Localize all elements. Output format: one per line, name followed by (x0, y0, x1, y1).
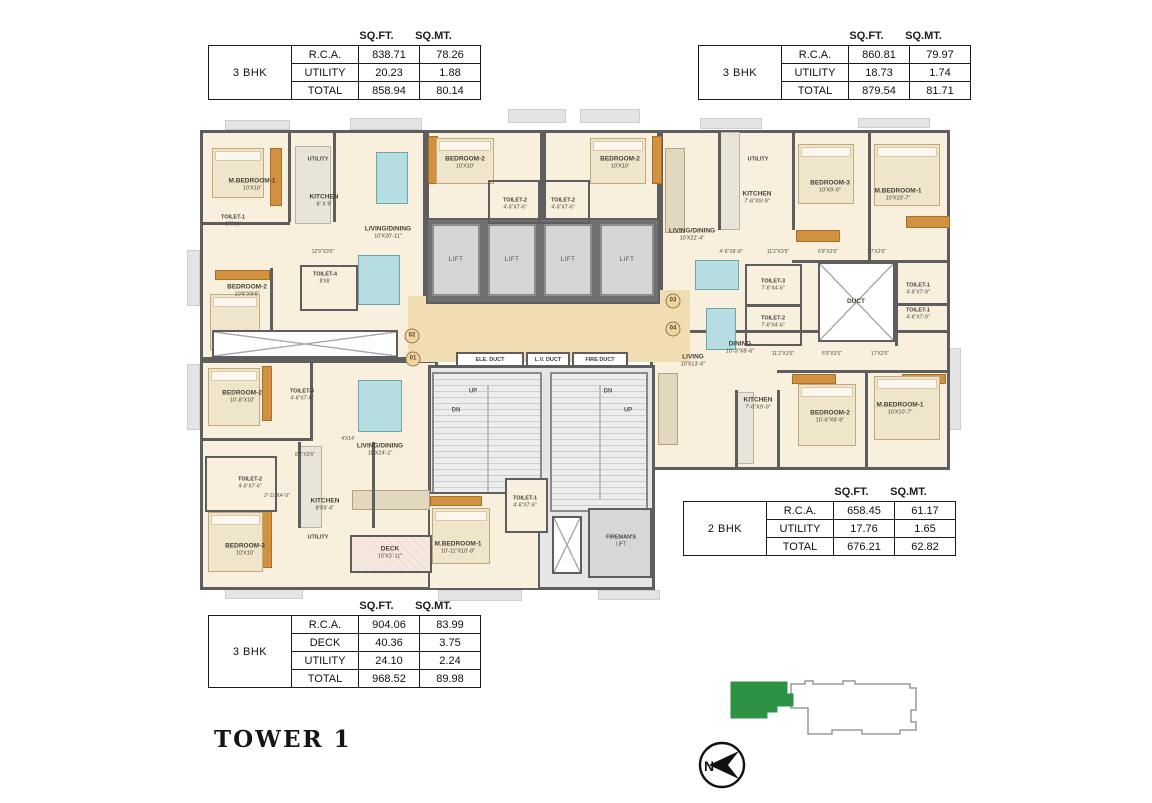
balcony-ledge (225, 120, 290, 130)
partition-wall (372, 442, 375, 528)
cell-sqmt: 62.82 (895, 538, 956, 556)
partition-wall (865, 370, 868, 470)
wardrobe (652, 136, 662, 184)
open-duct-left (212, 330, 398, 358)
row-label: UTILITY (767, 520, 834, 538)
cell-sqft: 20.23 (359, 64, 420, 82)
lift-label: LIFT (620, 257, 635, 263)
cell-sqft: 858.94 (359, 82, 420, 100)
cell-sqmt: 1.74 (910, 64, 971, 82)
sofa (352, 490, 430, 510)
cell-sqft: 24.10 (359, 652, 420, 670)
duct-label: ELE. DUCT (475, 357, 504, 363)
col-header-sqmt: SQ.MT. (895, 30, 952, 42)
tower-title: TOWER 1 (214, 726, 352, 753)
cell-sqft: 968.52 (359, 670, 420, 688)
cell-sqft: 658.45 (834, 502, 895, 520)
bed (208, 368, 260, 426)
bed (212, 148, 264, 198)
wardrobe (262, 510, 272, 568)
balcony-ledge (187, 250, 200, 306)
row-label: UTILITY (292, 64, 359, 82)
table-column-headers: SQ.FT. SQ.MT. (348, 600, 481, 612)
dining-table (358, 255, 400, 305)
cell-sqft: 40.36 (359, 634, 420, 652)
table-column-headers: SQ.FT. SQ.MT. (348, 30, 481, 42)
sofa (665, 148, 685, 233)
cell-sqmt: 89.98 (420, 670, 481, 688)
lv-duct: L.V. DUCT (526, 352, 570, 367)
balcony-ledge (508, 109, 566, 123)
partition-wall (200, 222, 290, 225)
balcony-ledge (858, 118, 930, 128)
firemans-lift (588, 508, 652, 578)
cell-sqmt: 1.65 (895, 520, 956, 538)
sofa (658, 373, 678, 445)
area-table-2bhk: SQ.FT. SQ.MT. 2 BHK R.C.A. 658.45 61.17 … (683, 486, 956, 556)
wardrobe (262, 366, 272, 421)
partition-wall (538, 180, 541, 224)
dining-table (706, 308, 736, 350)
kitchen-counter (295, 146, 331, 224)
row-label: UTILITY (292, 652, 359, 670)
row-label: R.C.A. (767, 502, 834, 520)
kitchen-counter (300, 446, 322, 528)
row-label: UTILITY (782, 64, 849, 82)
dining-table (695, 260, 739, 290)
toilet-partition (205, 456, 277, 512)
col-header-sqft: SQ.FT. (348, 600, 405, 612)
row-label: TOTAL (292, 670, 359, 688)
balcony-ledge (580, 109, 640, 123)
row-label: R.C.A. (782, 46, 849, 64)
cell-sqmt: 1.88 (420, 64, 481, 82)
kitchen-counter (718, 132, 740, 230)
lift-4: LIFT (600, 224, 654, 296)
area-table-3bhk-bottom: SQ.FT. SQ.MT. 3 BHK R.C.A. 904.06 83.99 … (208, 600, 481, 688)
duct-top-right (818, 262, 895, 342)
unit-type: 3 BHK (209, 616, 292, 688)
bed (874, 144, 940, 206)
lift-1: LIFT (432, 224, 480, 296)
partition-wall (718, 130, 721, 230)
dining-table (376, 152, 408, 204)
row-label: R.C.A. (292, 46, 359, 64)
col-header-sqmt: SQ.MT. (880, 486, 937, 498)
partition-wall (333, 130, 336, 222)
cell-sqft: 860.81 (849, 46, 910, 64)
fire-duct: FIRE DUCT (572, 352, 628, 367)
cell-sqft: 904.06 (359, 616, 420, 634)
area-table-3bhk-topleft: SQ.FT. SQ.MT. 3 BHK R.C.A. 838.71 78.26 … (208, 30, 481, 100)
bed (798, 384, 856, 446)
toilet-partition (300, 265, 358, 311)
duct-label: FIRE DUCT (585, 357, 614, 363)
bed (432, 508, 490, 564)
row-label: TOTAL (292, 82, 359, 100)
compass: N (697, 740, 747, 790)
keyplan-tower-highlight (731, 682, 793, 718)
balcony-ledge (350, 118, 422, 130)
col-header-sqft: SQ.FT. (838, 30, 895, 42)
wardrobe (792, 374, 836, 384)
deck (350, 535, 432, 573)
col-header-sqmt: SQ.MT. (405, 600, 462, 612)
cell-sqft: 879.54 (849, 82, 910, 100)
wardrobe (270, 148, 282, 206)
partition-wall (735, 390, 738, 470)
table-column-headers: SQ.FT. SQ.MT. (823, 486, 956, 498)
row-label: R.C.A. (292, 616, 359, 634)
duct-shaft-center (552, 516, 582, 574)
lift-2: LIFT (488, 224, 536, 296)
cell-sqft: 17.76 (834, 520, 895, 538)
duct-label: L.V. DUCT (535, 357, 561, 363)
kitchen-counter (736, 392, 754, 464)
area-table-3bhk-topright: SQ.FT. SQ.MT. 3 BHK R.C.A. 860.81 79.97 … (698, 30, 971, 100)
cell-sqmt: 83.99 (420, 616, 481, 634)
bed (436, 138, 494, 184)
lift-label: LIFT (505, 257, 520, 263)
bed (798, 144, 854, 204)
col-header-sqmt: SQ.MT. (405, 30, 462, 42)
lift-label: LIFT (561, 257, 576, 263)
cell-sqmt: 78.26 (420, 46, 481, 64)
row-label: TOTAL (782, 82, 849, 100)
bed (208, 512, 263, 572)
wardrobe (215, 270, 270, 280)
cell-sqmt: 2.24 (420, 652, 481, 670)
partition-wall (270, 268, 273, 330)
unit-type: 2 BHK (684, 502, 767, 556)
balcony-ledge (700, 118, 762, 129)
col-header-sqft: SQ.FT. (823, 486, 880, 498)
keyplan-footprint-outline (791, 681, 916, 734)
partition-wall (777, 390, 780, 470)
partition-wall (310, 360, 313, 441)
cell-sqmt: 61.17 (895, 502, 956, 520)
dining-table (358, 380, 402, 432)
partition-wall (288, 130, 291, 222)
partition-wall (200, 438, 312, 441)
lift-3: LIFT (544, 224, 592, 296)
keyplan (723, 676, 933, 748)
partition-wall (298, 442, 301, 528)
balcony-ledge (598, 590, 660, 600)
staircase-right (550, 372, 648, 512)
floorplan-sheet: { "title": "TOWER 1", "compass": {"label… (0, 0, 1152, 803)
partition-wall (792, 260, 950, 263)
balcony-ledge (187, 364, 200, 430)
partition-wall (792, 130, 795, 230)
lift-label: LIFT (449, 257, 464, 263)
partition-wall (868, 130, 871, 260)
cell-sqmt: 79.97 (910, 46, 971, 64)
row-label: DECK (292, 634, 359, 652)
cell-sqft: 838.71 (359, 46, 420, 64)
partition-wall (745, 304, 802, 307)
bed (874, 376, 940, 440)
table-row: 3 BHK R.C.A. 904.06 83.99 (209, 616, 481, 634)
bed (590, 138, 646, 184)
table-row: 3 BHK R.C.A. 838.71 78.26 (209, 46, 481, 64)
cell-sqft: 18.73 (849, 64, 910, 82)
cell-sqmt: 81.71 (910, 82, 971, 100)
wardrobe (796, 230, 840, 242)
col-header-sqft: SQ.FT. (348, 30, 405, 42)
unit-type: 3 BHK (699, 46, 782, 100)
cell-sqmt: 80.14 (420, 82, 481, 100)
table-column-headers: SQ.FT. SQ.MT. (838, 30, 971, 42)
wardrobe (906, 216, 950, 228)
wardrobe (430, 496, 482, 506)
table-row: 3 BHK R.C.A. 860.81 79.97 (699, 46, 971, 64)
partition-wall (895, 303, 950, 306)
entry-corridor-right (660, 290, 690, 362)
table-row: 2 BHK R.C.A. 658.45 61.17 (684, 502, 956, 520)
toilet-bottom-center (505, 478, 548, 533)
unit-type: 3 BHK (209, 46, 292, 100)
cell-sqft: 676.21 (834, 538, 895, 556)
electrical-duct: ELE. DUCT (456, 352, 524, 367)
partition-wall (777, 370, 950, 373)
cell-sqmt: 3.75 (420, 634, 481, 652)
row-label: TOTAL (767, 538, 834, 556)
